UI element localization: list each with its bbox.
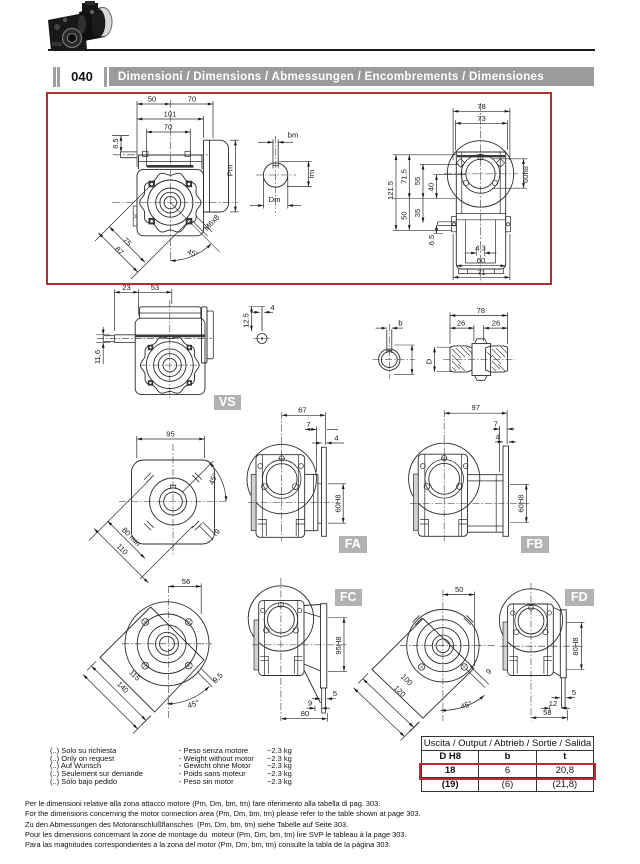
svg-text:71.5: 71.5 xyxy=(400,169,409,184)
svg-text:D: D xyxy=(425,358,434,364)
svg-text:9: 9 xyxy=(308,699,312,708)
svg-text:35: 35 xyxy=(413,209,422,217)
svg-text:11,6: 11,6 xyxy=(93,350,102,364)
svg-text:120: 120 xyxy=(392,684,407,699)
svg-text:80H8: 80H8 xyxy=(571,637,580,655)
svg-text:55: 55 xyxy=(413,177,422,185)
svg-text:100: 100 xyxy=(399,672,414,687)
svg-text:26: 26 xyxy=(457,319,465,328)
svg-text:70: 70 xyxy=(164,123,172,132)
svg-text:50: 50 xyxy=(148,95,156,104)
svg-text:5: 5 xyxy=(333,689,337,698)
svg-text:67: 67 xyxy=(298,405,306,414)
svg-text:12.5: 12.5 xyxy=(241,313,250,328)
svg-text:60H8: 60H8 xyxy=(516,494,525,512)
svg-text:4: 4 xyxy=(270,303,274,312)
svg-text:50: 50 xyxy=(455,585,463,594)
svg-text:73: 73 xyxy=(477,114,485,123)
svg-text:6.5: 6.5 xyxy=(111,138,120,149)
svg-text:95H8: 95H8 xyxy=(334,636,343,654)
svg-text:4: 4 xyxy=(334,434,338,443)
svg-text:58: 58 xyxy=(543,708,551,717)
svg-text:7: 7 xyxy=(494,419,498,428)
svg-text:7: 7 xyxy=(306,420,310,429)
svg-text:6.5: 6.5 xyxy=(427,235,436,246)
svg-text:121.5: 121.5 xyxy=(386,181,395,200)
svg-text:26: 26 xyxy=(492,319,500,328)
svg-text:101: 101 xyxy=(164,110,177,119)
svg-text:tm: tm xyxy=(307,170,316,178)
svg-text:45°: 45° xyxy=(186,247,200,259)
svg-text:78: 78 xyxy=(477,102,485,111)
svg-text:60H8: 60H8 xyxy=(333,494,342,512)
svg-text:5: 5 xyxy=(572,688,576,697)
svg-text:87: 87 xyxy=(113,245,125,257)
svg-text:b: b xyxy=(398,319,402,328)
svg-text:60: 60 xyxy=(477,256,485,265)
svg-text:71: 71 xyxy=(477,268,485,277)
svg-text:45°: 45° xyxy=(459,699,473,711)
svg-text:4: 4 xyxy=(495,433,499,442)
svg-text:50: 50 xyxy=(400,211,409,219)
svg-text:12: 12 xyxy=(549,699,557,708)
svg-text:53: 53 xyxy=(151,283,159,292)
svg-text:95: 95 xyxy=(166,430,174,439)
svg-text:78: 78 xyxy=(477,306,485,315)
svg-text:80: 80 xyxy=(301,709,309,718)
svg-text:97: 97 xyxy=(471,403,479,412)
svg-text:110: 110 xyxy=(115,542,130,557)
svg-text:45°: 45° xyxy=(207,472,220,486)
svg-text:4.3: 4.3 xyxy=(475,244,486,253)
svg-text:60h8: 60h8 xyxy=(521,166,530,183)
svg-text:bm: bm xyxy=(288,131,299,140)
svg-text:140: 140 xyxy=(115,680,130,695)
svg-text:40: 40 xyxy=(427,183,436,191)
svg-text:75: 75 xyxy=(121,236,133,248)
svg-text:Dm: Dm xyxy=(269,195,281,204)
svg-text:9: 9 xyxy=(484,667,493,676)
svg-text:M6x8: M6x8 xyxy=(202,213,221,233)
svg-text:23: 23 xyxy=(122,283,130,292)
svg-text:9,5: 9,5 xyxy=(211,671,225,685)
svg-text:70: 70 xyxy=(188,95,196,104)
svg-text:Pm: Pm xyxy=(226,165,235,176)
svg-text:115: 115 xyxy=(127,668,142,683)
svg-text:56: 56 xyxy=(182,577,190,586)
